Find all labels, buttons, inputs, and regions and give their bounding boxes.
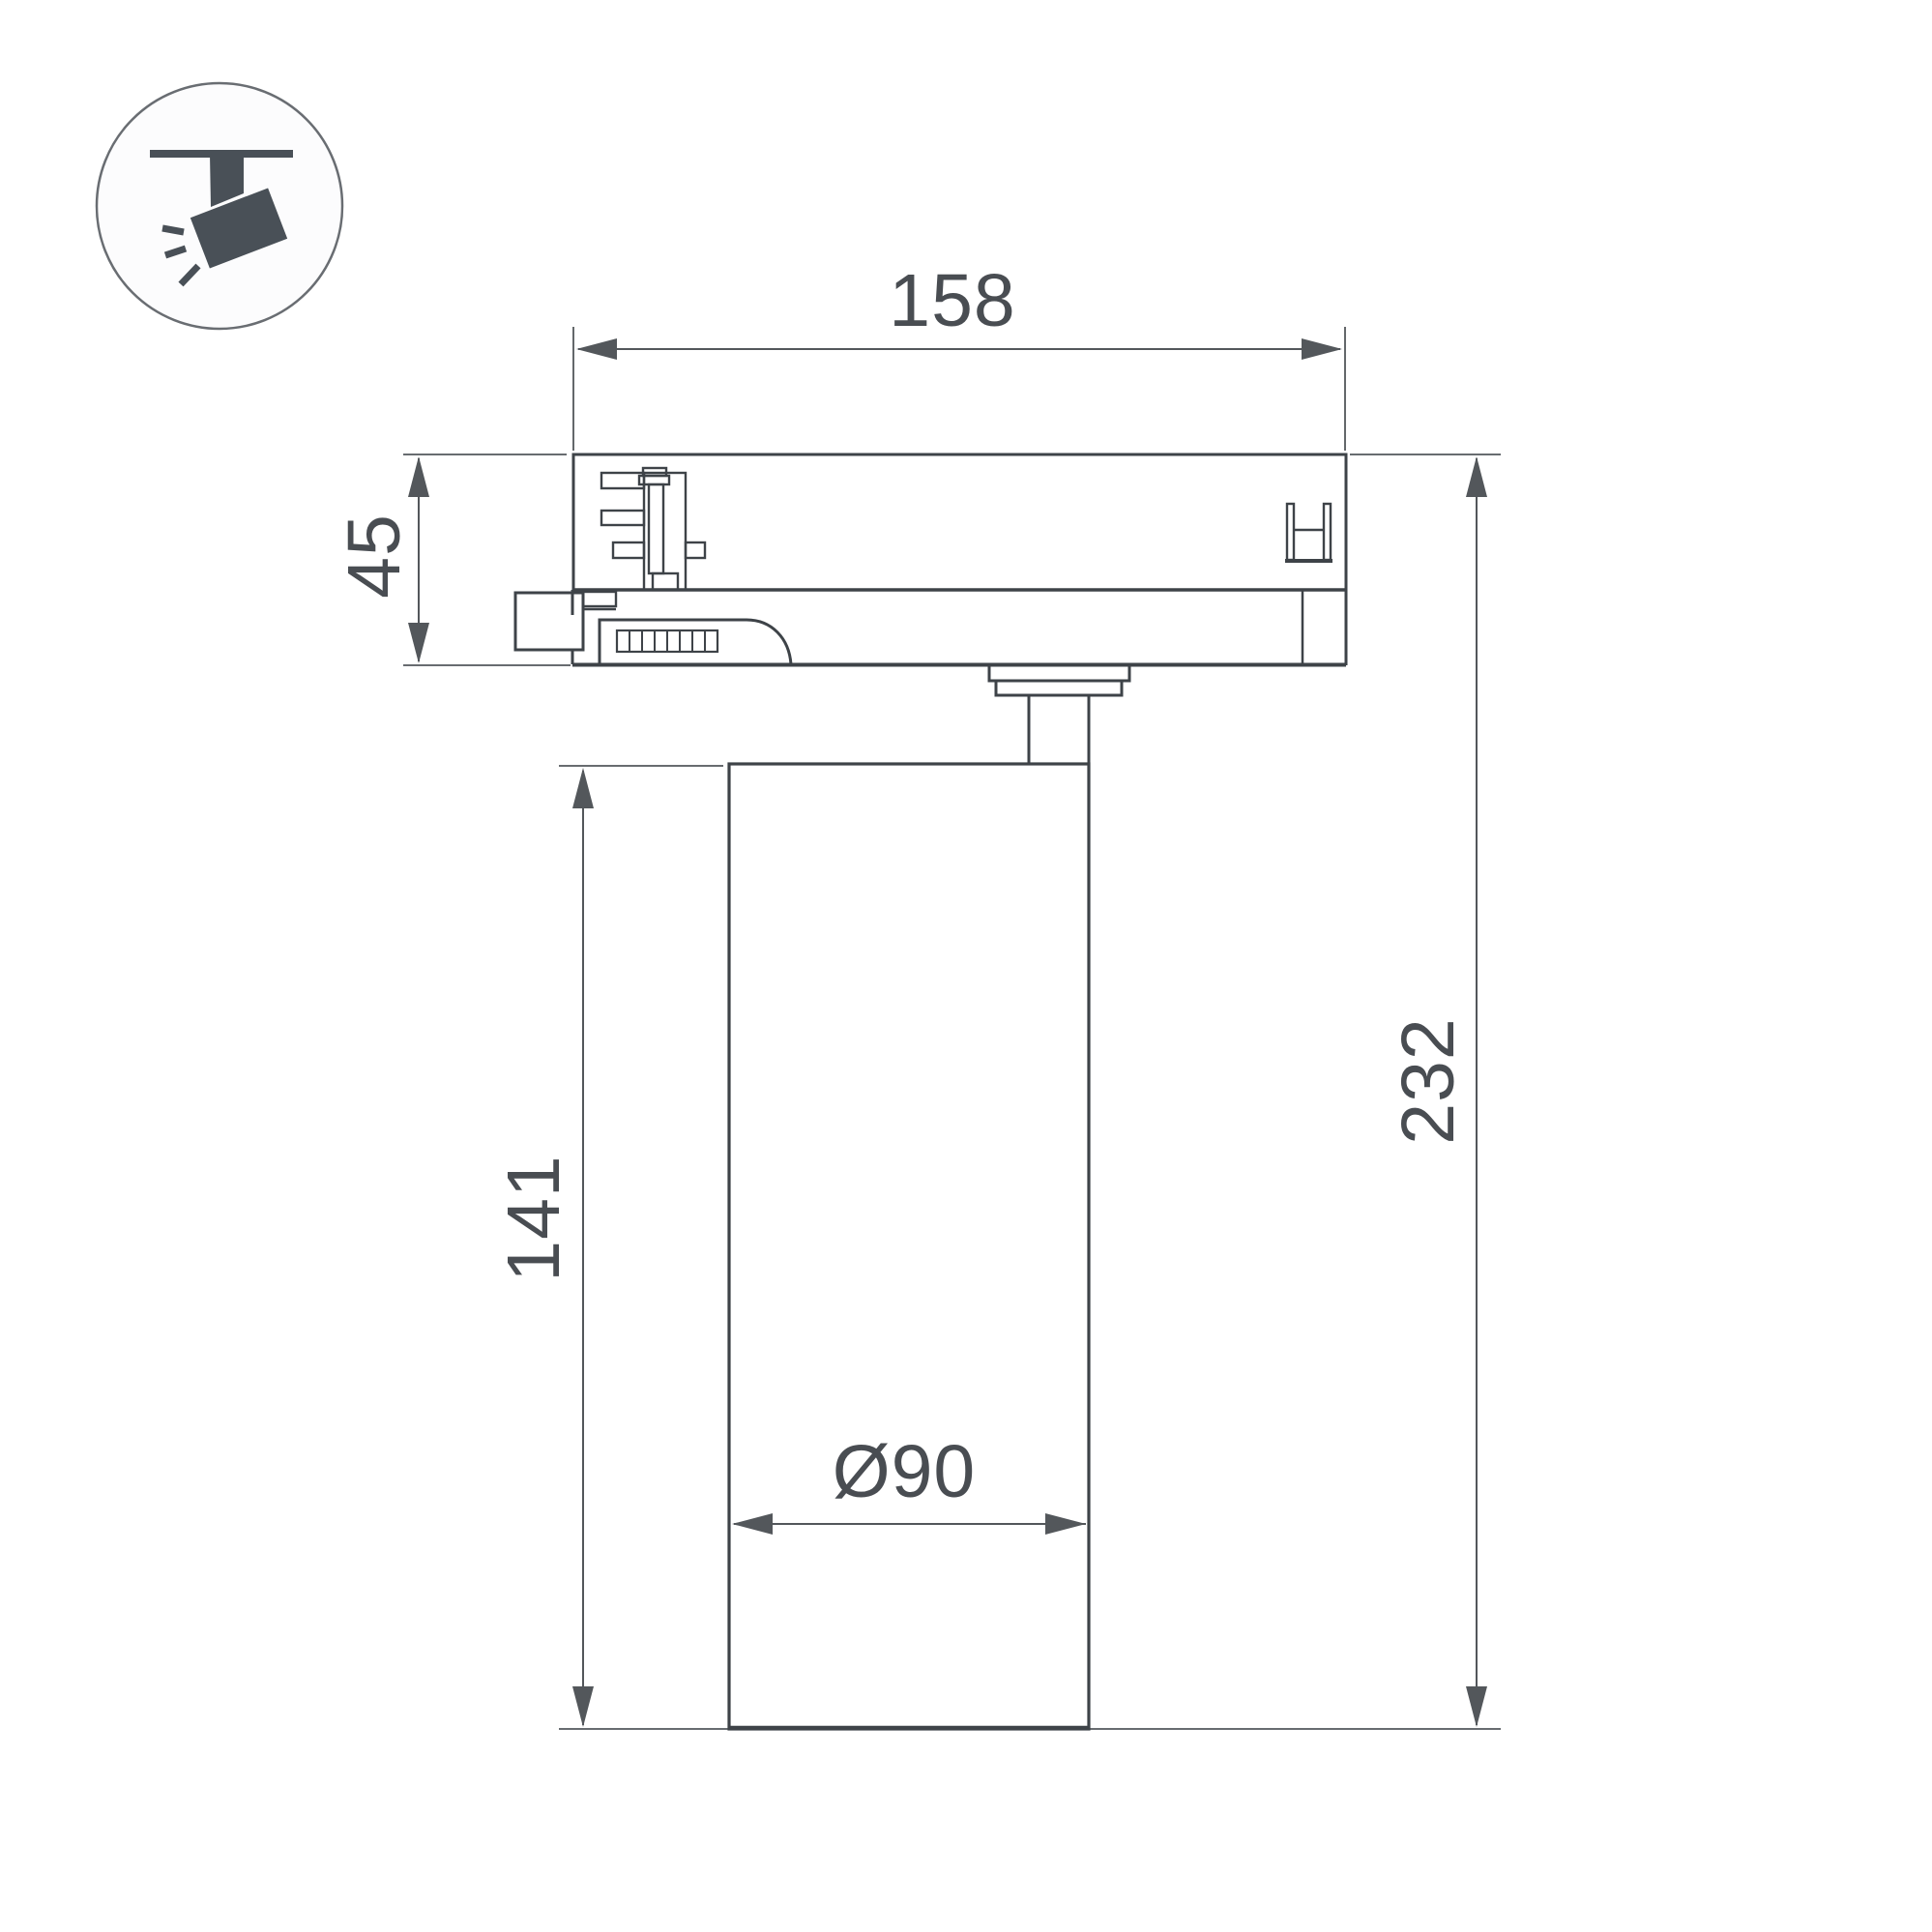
contact-prong bbox=[601, 511, 644, 525]
dim-label-adapter-width: 158 bbox=[889, 259, 1015, 342]
drawing-canvas: 158 45 141 232 Ø90 bbox=[0, 0, 1932, 1932]
u-clip-prong bbox=[1287, 504, 1294, 560]
arrowhead-down bbox=[572, 1686, 594, 1727]
contact-prong bbox=[613, 542, 644, 558]
lamp-body-outline bbox=[729, 764, 1089, 1729]
arrowhead-right bbox=[1302, 338, 1342, 360]
lamp-body bbox=[729, 764, 1089, 1729]
joint-step-plate bbox=[996, 681, 1122, 695]
dim-label-body-diameter: Ø90 bbox=[833, 1430, 977, 1513]
dimension-drawing-svg: 158 45 141 232 Ø90 bbox=[0, 0, 1932, 1932]
contact-prong-right bbox=[686, 542, 705, 558]
slider-housing bbox=[600, 620, 791, 664]
dim-label-adapter-height: 45 bbox=[333, 513, 416, 599]
adapter-upper-housing bbox=[573, 454, 1346, 590]
dimension-arrowheads bbox=[408, 338, 1487, 1727]
arrowhead-left bbox=[732, 1513, 773, 1535]
dimension-labels: 158 45 141 232 Ø90 bbox=[333, 259, 1470, 1513]
swivel-joint bbox=[989, 664, 1129, 764]
arrowhead-up bbox=[572, 768, 594, 808]
arrowhead-down bbox=[408, 623, 429, 663]
category-icon bbox=[97, 83, 342, 329]
dim-label-body-height: 141 bbox=[492, 1155, 575, 1281]
icon-circle bbox=[97, 83, 342, 329]
arrowhead-left bbox=[576, 338, 617, 360]
contact-screw-shaft bbox=[649, 484, 663, 573]
contact-assembly bbox=[601, 468, 705, 590]
track-adapter bbox=[515, 454, 1346, 764]
slider-grip-ribs bbox=[629, 630, 705, 652]
dim-label-total-height: 232 bbox=[1387, 1017, 1470, 1144]
latch-notch bbox=[583, 592, 616, 606]
u-clip-prong bbox=[1324, 504, 1331, 560]
joint-step-plate bbox=[989, 664, 1129, 681]
arrowhead-right bbox=[1045, 1513, 1086, 1535]
dimension-lines bbox=[403, 327, 1501, 1729]
slider-housing-outline bbox=[600, 620, 791, 664]
arrowhead-down bbox=[1466, 1686, 1487, 1727]
contact-foot bbox=[653, 573, 678, 590]
u-clip bbox=[1285, 504, 1332, 561]
contact-prong bbox=[601, 473, 644, 488]
arrowhead-up bbox=[1466, 456, 1487, 497]
arrowhead-up bbox=[408, 456, 429, 497]
light-ray bbox=[162, 228, 184, 232]
